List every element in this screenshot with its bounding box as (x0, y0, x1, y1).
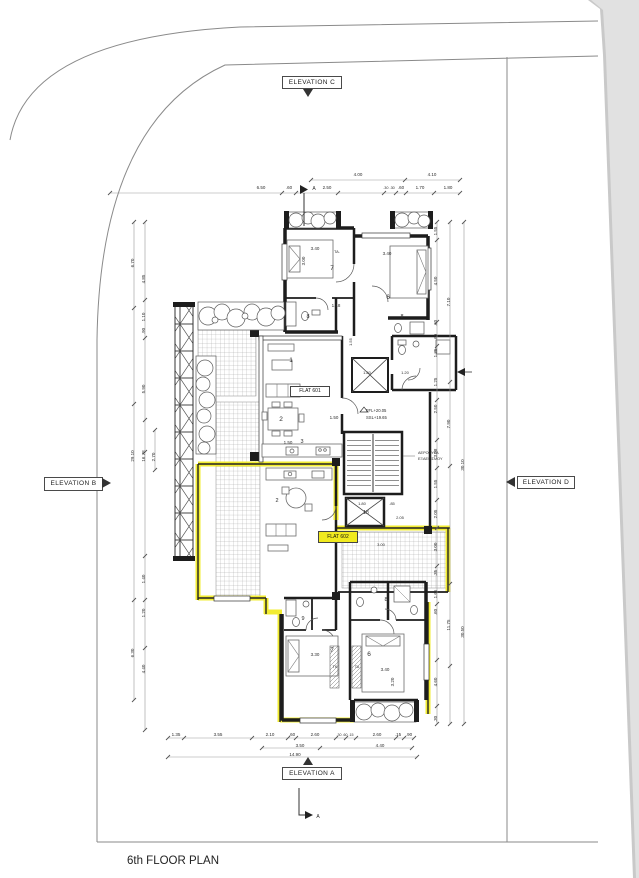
dim-label: 3.50 (296, 743, 305, 748)
dim-label: 2.05 (396, 515, 405, 520)
closet-label: TA (355, 665, 360, 669)
dim-label: 1.55 (433, 479, 438, 488)
dim-label: .30 (433, 715, 438, 722)
dim-label: 4.40 (141, 664, 146, 673)
dim-label: 1.18 (332, 303, 341, 308)
dim-label: 4.10 (428, 172, 437, 177)
room-number: 9 (301, 616, 304, 622)
elevation-b-label: ELEVATION B (44, 477, 103, 491)
dim-label: 3.20 (390, 677, 395, 686)
dim-label: 7.10 (446, 297, 451, 306)
elevation-b-arrow-icon (102, 478, 111, 488)
dim-label: 7.90 (446, 419, 451, 428)
dim-label: 16.78 (141, 450, 146, 462)
dim-label: 3.00 (377, 542, 386, 547)
shaft-note-line2: ΕΞΑΕΡΙΣΜΟΥ (418, 457, 443, 461)
room-number: 7 (330, 647, 334, 654)
dim-label: 1.10 (141, 312, 146, 321)
dim-label: 11.75 (446, 619, 451, 630)
dim-label: 3.40 (311, 246, 320, 251)
elevation-c-arrow-icon (303, 89, 313, 97)
dim-label: 29.10 (130, 450, 135, 462)
dim-label: .60 (286, 185, 293, 190)
dim-label: 1.20 (141, 608, 146, 617)
dim-label: 2.50 (323, 185, 332, 190)
dim-label: .85 (389, 501, 395, 506)
dim-label: .60 (433, 333, 438, 340)
dim-label: 3.55 (214, 732, 223, 737)
dim-label: .60 (289, 732, 296, 737)
room-number: 2 (275, 498, 278, 504)
dim-label: 2.50 (433, 404, 438, 413)
elevation-c-label: ELEVATION C (282, 76, 342, 89)
dim-label: 4.40 (376, 743, 385, 748)
ssl-level-text: SSL+19.65 (366, 415, 388, 420)
dim-label: 1.70 (416, 185, 425, 190)
dim-label: 3.40 (383, 251, 392, 256)
dim-label: 14.90 (289, 752, 301, 757)
dim-label: 5.90 (141, 384, 146, 393)
dim-label: .30 .30 (383, 186, 395, 190)
dim-label: 2.10 (266, 732, 275, 737)
dim-label: .90 (141, 327, 146, 334)
dim-label: 3.08 (433, 448, 438, 457)
room-number: 8 (400, 314, 403, 320)
section-marker-label: A (316, 814, 320, 820)
dim-label: 1.50 (284, 440, 293, 445)
dim-label: .30 .60 .15 (337, 733, 354, 737)
dim-label: 1.20 (401, 370, 410, 375)
room-number: 8 (306, 314, 309, 320)
elevation-d-arrow-icon (506, 477, 515, 487)
dim-label: 2.60 (373, 732, 382, 737)
dim-label: 1.80 (444, 185, 453, 190)
room-number: 7 (330, 265, 334, 272)
dim-label: 4.85 (141, 274, 146, 283)
section-marker-label: A (312, 186, 316, 192)
room-number: 8 (384, 597, 387, 603)
dim-label: 1.35 (172, 732, 181, 737)
dim-label: 30.50 (460, 626, 465, 638)
dim-label: 3.40 (381, 667, 390, 672)
dim-label: 30.10 (460, 459, 465, 471)
staircase (344, 432, 402, 494)
dim-label: 2.60 (311, 732, 320, 737)
dim-label: 4.60 (433, 677, 438, 686)
pergola-x-strip (173, 302, 195, 561)
dim-label: 1.80 (358, 501, 367, 506)
flat-601-label: FLAT 601 (290, 386, 330, 397)
dim-label: 1.80 (363, 370, 372, 375)
dim-label: .90 (406, 732, 413, 737)
closet-label: TK (333, 665, 338, 669)
dim-label: .60 (433, 608, 438, 615)
dim-label: 1.35 (433, 348, 438, 357)
dim-label: 6.50 (257, 185, 266, 190)
elevation-d-label: ELEVATION D (517, 476, 575, 489)
dim-label: 2.05 (433, 509, 438, 518)
plan-title: 6th FLOOR PLAN (127, 855, 219, 867)
closet-label: TA. (334, 249, 340, 254)
room-number: 1 (289, 357, 293, 364)
dim-label: 1.65 (433, 589, 438, 598)
dim-label: .15 (395, 732, 402, 737)
ffl-level-text: FFL+20.05 (366, 408, 387, 413)
dim-label: 1.55 (433, 226, 438, 235)
room-number: 18 (363, 510, 369, 516)
floor-plan-drawing: FFL+20.05 SSL+19.65 ΑΕΡΟΘΥΡΑ ΕΞΑΕΡΙΣΜΟΥ … (0, 0, 639, 878)
room-number: 2 (279, 416, 283, 423)
dim-label: 3.30 (311, 652, 320, 657)
dim-label: 6.30 (130, 648, 135, 657)
dim-label: 1.55 (348, 337, 353, 346)
dim-label: 2.70 (151, 452, 156, 461)
dim-label: .35 (433, 569, 438, 576)
elevation-a-arrow-icon (303, 757, 313, 765)
dim-label: 1.25 (433, 377, 438, 386)
dim-label: 3.00 (433, 542, 438, 551)
elevation-a-label: ELEVATION A (282, 767, 342, 780)
dim-label: 1.40 (141, 574, 146, 583)
dim-label: 1.50 (330, 415, 339, 420)
dim-label: 4.00 (354, 172, 363, 177)
room-number: 6 (386, 294, 390, 301)
dim-label: .60 (433, 319, 438, 326)
section-markers (299, 185, 472, 819)
dim-label: 6.70 (130, 258, 135, 267)
room-number: 3 (300, 439, 303, 445)
room-number: 6 (367, 651, 371, 658)
dim-label: 3.00 (301, 256, 306, 265)
dim-label: .60 (398, 185, 405, 190)
dim-label: 4.50 (433, 276, 438, 285)
flat-602-label: FLAT 602 (318, 531, 358, 543)
